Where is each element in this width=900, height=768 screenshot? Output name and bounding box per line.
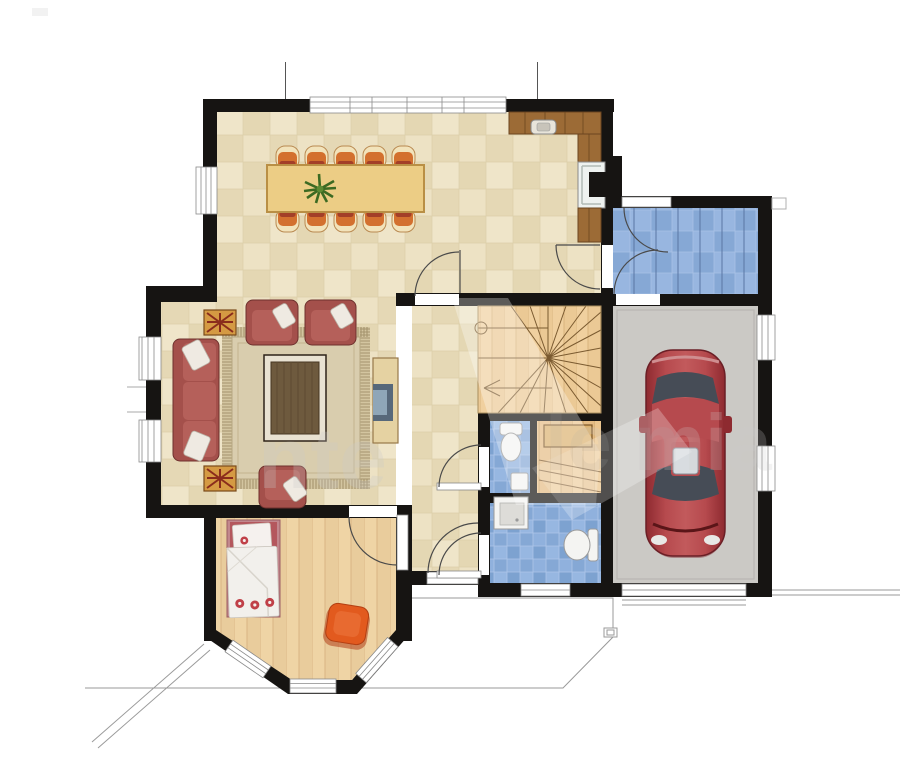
svg-text:nte: nte xyxy=(258,411,387,507)
svg-text:le mia: le mia xyxy=(545,398,772,487)
